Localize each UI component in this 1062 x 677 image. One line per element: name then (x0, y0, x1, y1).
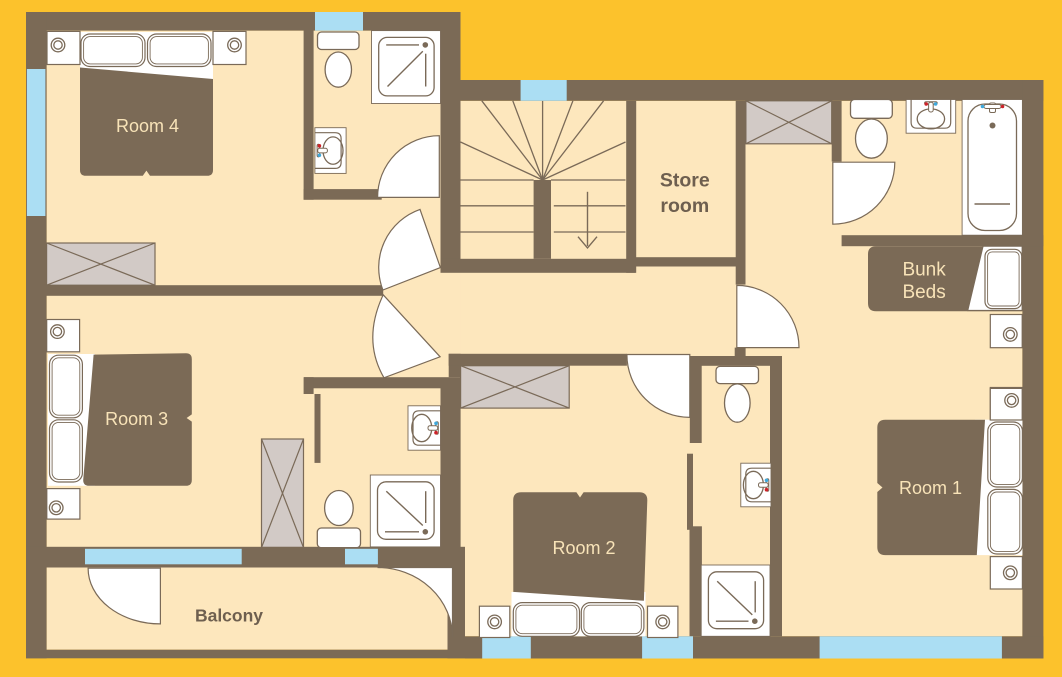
svg-text:Store: Store (660, 170, 710, 192)
svg-text:Balcony: Balcony (195, 606, 263, 626)
svg-text:Bunk: Bunk (902, 260, 946, 281)
svg-text:room: room (660, 195, 709, 217)
svg-text:Room 2: Room 2 (552, 538, 615, 558)
svg-text:Room 4: Room 4 (116, 116, 179, 136)
svg-text:Room 3: Room 3 (105, 409, 168, 429)
svg-text:Beds: Beds (902, 282, 945, 303)
svg-text:Room 1: Room 1 (899, 478, 962, 498)
